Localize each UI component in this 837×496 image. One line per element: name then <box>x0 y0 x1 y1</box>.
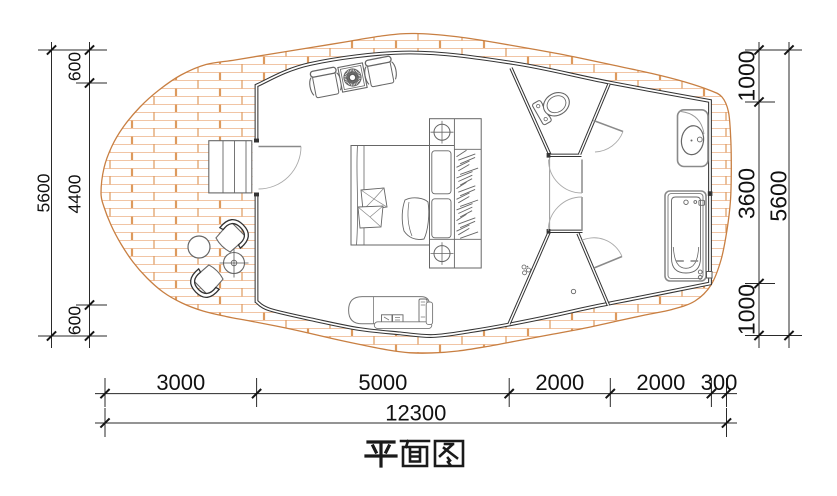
svg-text:1000: 1000 <box>734 284 760 335</box>
svg-text:600: 600 <box>65 306 85 335</box>
svg-text:12300: 12300 <box>385 401 446 426</box>
svg-text:2000: 2000 <box>535 370 584 395</box>
svg-text:5600: 5600 <box>766 170 792 221</box>
svg-text:3000: 3000 <box>156 370 205 395</box>
svg-text:5600: 5600 <box>34 173 54 212</box>
svg-text:2000: 2000 <box>636 370 685 395</box>
svg-text:4400: 4400 <box>65 174 85 213</box>
svg-text:5000: 5000 <box>358 370 407 395</box>
svg-text:300: 300 <box>701 370 738 395</box>
svg-text:1000: 1000 <box>734 50 760 101</box>
svg-text:3600: 3600 <box>734 168 760 219</box>
svg-text:600: 600 <box>65 52 85 81</box>
